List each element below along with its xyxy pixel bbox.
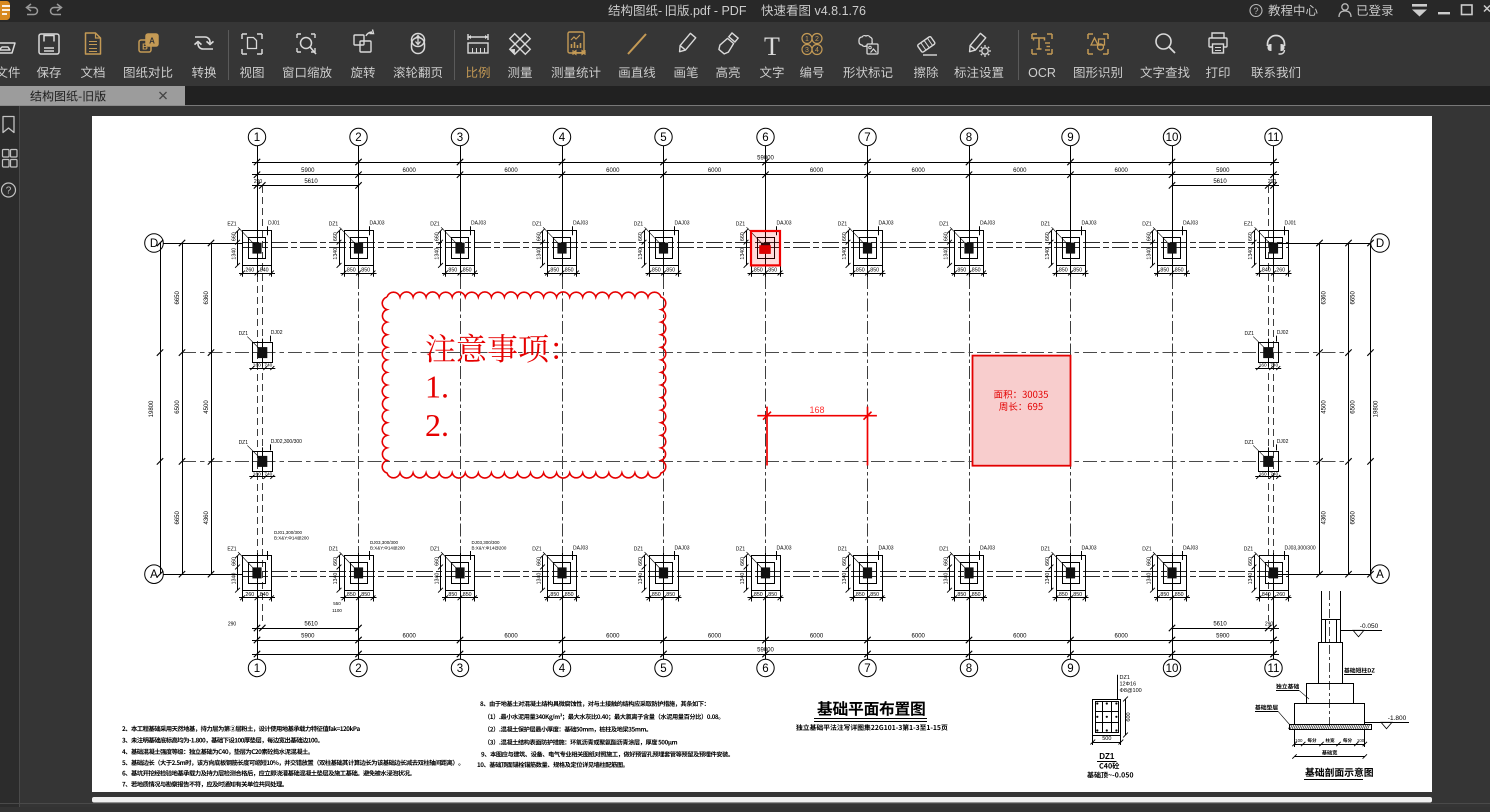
svg-text:660: 660 [638, 232, 644, 241]
svg-text:DAJ03: DAJ03 [777, 546, 792, 552]
svg-text:850: 850 [957, 592, 966, 598]
svg-text:5900: 5900 [301, 168, 315, 174]
svg-text:5610: 5610 [1213, 622, 1227, 628]
svg-text:Φ8@100: Φ8@100 [1120, 688, 1142, 694]
svg-text:660: 660 [944, 557, 950, 566]
svg-text:660: 660 [435, 557, 441, 566]
svg-text:660: 660 [537, 232, 543, 241]
svg-text:660: 660 [333, 232, 339, 241]
svg-text:A: A [150, 569, 158, 581]
svg-text:1340: 1340 [435, 573, 441, 585]
svg-text:1100: 1100 [332, 608, 342, 613]
svg-text:740: 740 [1270, 471, 1278, 477]
svg-text:840: 840 [260, 267, 269, 273]
svg-text:4: 4 [559, 132, 566, 144]
svg-text:DJ03,300/300: DJ03,300/300 [370, 540, 399, 545]
svg-text:7: 7 [864, 132, 870, 144]
svg-text:DZ1: DZ1 [1244, 440, 1254, 446]
svg-text:3: 3 [457, 663, 463, 675]
svg-text:DZ1: DZ1 [634, 547, 644, 553]
svg-text:160: 160 [1259, 363, 1267, 369]
svg-text:DJ03,300/300: DJ03,300/300 [1285, 546, 1316, 552]
svg-text:850: 850 [768, 267, 777, 273]
svg-text:850: 850 [1059, 592, 1068, 598]
svg-text:850: 850 [565, 267, 574, 273]
svg-text:5: 5 [660, 132, 666, 144]
svg-text:850: 850 [347, 592, 356, 598]
svg-text:850: 850 [463, 267, 472, 273]
svg-text:1340: 1340 [537, 573, 543, 585]
svg-text:B:X&Y:Φ14@200: B:X&Y:Φ14@200 [370, 546, 405, 551]
svg-text:840: 840 [260, 592, 269, 598]
svg-text:850: 850 [550, 592, 559, 598]
svg-text:DZ1: DZ1 [532, 222, 542, 228]
svg-text:A: A [149, 37, 155, 46]
svg-text:6650: 6650 [1351, 510, 1357, 524]
svg-text:2: 2 [815, 36, 819, 43]
svg-text:6000: 6000 [504, 168, 518, 174]
svg-text:850: 850 [347, 267, 356, 273]
svg-text:168: 168 [809, 405, 824, 415]
svg-text:850: 850 [652, 267, 661, 273]
svg-text:850: 850 [1073, 267, 1082, 273]
svg-text:6000: 6000 [810, 634, 824, 640]
svg-text:7: 7 [864, 663, 870, 675]
svg-text:6: 6 [762, 132, 768, 144]
svg-text:850: 850 [957, 267, 966, 273]
svg-text:11: 11 [1268, 132, 1280, 144]
svg-text:6000: 6000 [504, 634, 518, 640]
svg-text:1340: 1340 [944, 248, 950, 260]
svg-text:-1.800: -1.800 [1388, 715, 1407, 722]
svg-text:1: 1 [254, 663, 260, 675]
svg-text:DZ1: DZ1 [430, 547, 440, 553]
svg-text:4500: 4500 [204, 400, 210, 414]
svg-text:1340: 1340 [740, 248, 746, 260]
svg-text:DAJ03: DAJ03 [980, 546, 995, 552]
svg-text:2.: 2. [425, 407, 449, 443]
svg-text:4500: 4500 [1322, 400, 1328, 414]
svg-text:DAJ03: DAJ03 [1183, 221, 1198, 227]
svg-text:EZ1: EZ1 [1244, 222, 1253, 228]
svg-text:DZ1: DZ1 [329, 222, 339, 228]
svg-text:850: 850 [1175, 267, 1184, 273]
svg-text:10: 10 [1166, 663, 1179, 675]
svg-text:1340: 1340 [333, 248, 339, 260]
svg-text:8: 8 [966, 663, 972, 675]
svg-text:850: 850 [768, 592, 777, 598]
svg-text:3: 3 [457, 132, 463, 144]
svg-text:850: 850 [856, 592, 865, 598]
svg-text:290: 290 [228, 622, 237, 628]
svg-text:1340: 1340 [1248, 248, 1254, 260]
svg-text:6000: 6000 [1115, 634, 1129, 640]
svg-text:6650: 6650 [175, 510, 181, 524]
svg-text:660: 660 [1045, 557, 1051, 566]
svg-text:740: 740 [1270, 363, 1278, 369]
svg-text:660: 660 [1147, 557, 1153, 566]
svg-text:DZ1: DZ1 [1120, 675, 1130, 681]
svg-text:3: 3 [805, 47, 809, 54]
svg-text:DJ01,300/300: DJ01,300/300 [274, 530, 303, 535]
svg-text:6000: 6000 [1115, 168, 1129, 174]
svg-text:DZ1: DZ1 [239, 440, 249, 446]
svg-text:850: 850 [666, 267, 675, 273]
svg-text:11: 11 [1268, 663, 1280, 675]
svg-text:DJ02: DJ02 [271, 330, 283, 336]
svg-text:660: 660 [232, 232, 238, 241]
svg-text:DZ1: DZ1 [838, 222, 848, 228]
svg-text:DZ1: DZ1 [939, 547, 949, 553]
svg-text:850: 850 [565, 592, 574, 598]
svg-text:660: 660 [842, 232, 848, 241]
svg-text:DAJ03: DAJ03 [471, 221, 486, 227]
svg-text:1340: 1340 [232, 248, 238, 260]
svg-text:DZ1: DZ1 [532, 547, 542, 553]
svg-text:DZ1: DZ1 [1041, 222, 1051, 228]
svg-text:5610: 5610 [304, 179, 318, 185]
svg-text:850: 850 [754, 592, 763, 598]
svg-text:660: 660 [944, 232, 950, 241]
svg-text:6000: 6000 [1013, 634, 1027, 640]
svg-text:12Φ16: 12Φ16 [1120, 682, 1137, 688]
svg-text:660: 660 [435, 232, 441, 241]
svg-text:DJ03,300/300: DJ03,300/300 [472, 540, 501, 545]
svg-text:9: 9 [1067, 663, 1073, 675]
svg-text:DJ01: DJ01 [1285, 221, 1297, 227]
svg-text:850: 850 [1160, 592, 1169, 598]
svg-text:DZ1: DZ1 [329, 547, 339, 553]
svg-text:DAJ03: DAJ03 [879, 546, 894, 552]
svg-text:850: 850 [361, 267, 370, 273]
svg-text:5: 5 [660, 663, 666, 675]
svg-text:550: 550 [333, 601, 341, 606]
svg-text:DAJ03: DAJ03 [879, 221, 894, 227]
svg-text:850: 850 [870, 267, 879, 273]
svg-text:2: 2 [355, 663, 361, 675]
svg-text:DZ1: DZ1 [1142, 222, 1152, 228]
svg-text:1: 1 [254, 132, 260, 144]
svg-text:DZ1: DZ1 [838, 547, 848, 553]
svg-text:6000: 6000 [403, 168, 417, 174]
svg-text:DJ02: DJ02 [1277, 439, 1289, 445]
svg-text:?: ? [1253, 6, 1258, 16]
svg-text:850: 850 [972, 592, 981, 598]
svg-text:OCR: OCR [1028, 66, 1056, 80]
svg-text:850: 850 [652, 592, 661, 598]
svg-text:4360: 4360 [1322, 510, 1328, 524]
svg-text:5610: 5610 [1213, 179, 1227, 185]
svg-text:850: 850 [1073, 592, 1082, 598]
svg-text:660: 660 [740, 232, 746, 241]
svg-text:600: 600 [1126, 712, 1132, 721]
svg-text:660: 660 [537, 557, 543, 566]
svg-text:850: 850 [1059, 267, 1068, 273]
svg-text:5900: 5900 [1216, 168, 1230, 174]
svg-text:1340: 1340 [1147, 573, 1153, 585]
svg-text:160: 160 [1259, 471, 1267, 477]
svg-text:6: 6 [762, 663, 768, 675]
svg-text:260: 260 [1276, 267, 1285, 273]
svg-text:DAJ03: DAJ03 [777, 221, 792, 227]
svg-text:DZ1: DZ1 [1041, 547, 1051, 553]
svg-text:5610: 5610 [304, 622, 318, 628]
svg-text:19800: 19800 [1374, 400, 1380, 417]
svg-text:840: 840 [1262, 267, 1271, 273]
svg-text:4360: 4360 [204, 510, 210, 524]
svg-text:D: D [150, 238, 158, 250]
svg-text:660: 660 [740, 557, 746, 566]
svg-text:260: 260 [245, 592, 254, 598]
svg-text:1340: 1340 [435, 248, 441, 260]
svg-text:850: 850 [361, 592, 370, 598]
svg-text:DJ02: DJ02 [1277, 330, 1289, 336]
svg-text:260: 260 [245, 267, 254, 273]
svg-text:DZ1: DZ1 [1244, 331, 1254, 337]
svg-text:10: 10 [1166, 132, 1179, 144]
svg-text:850: 850 [1175, 592, 1184, 598]
svg-text:B:X&Y:Φ14@200: B:X&Y:Φ14@200 [472, 546, 507, 551]
svg-text:6650: 6650 [175, 290, 181, 304]
svg-text:740: 740 [264, 471, 272, 477]
svg-text:DAJ03: DAJ03 [1082, 221, 1097, 227]
svg-text:1340: 1340 [232, 573, 238, 585]
svg-text:6000: 6000 [708, 634, 722, 640]
svg-text:6000: 6000 [403, 634, 417, 640]
svg-text:850: 850 [754, 267, 763, 273]
svg-text:4: 4 [559, 663, 566, 675]
svg-text:1.: 1. [425, 369, 449, 405]
svg-text:DAJ03: DAJ03 [573, 546, 588, 552]
svg-text:6650: 6650 [1351, 290, 1357, 304]
svg-text:660: 660 [638, 557, 644, 566]
svg-text:DZ1: DZ1 [939, 222, 949, 228]
svg-text:DAJ03: DAJ03 [1183, 546, 1198, 552]
svg-text:DZ1: DZ1 [239, 331, 249, 337]
svg-text:6000: 6000 [606, 168, 620, 174]
svg-text:6000: 6000 [606, 634, 620, 640]
svg-text:6000: 6000 [912, 634, 926, 640]
svg-text:660: 660 [1147, 232, 1153, 241]
svg-text:850: 850 [666, 592, 675, 598]
svg-text:DZ1: DZ1 [736, 547, 746, 553]
svg-text:DZ1: DZ1 [1099, 752, 1115, 761]
svg-text:DZ1: DZ1 [1244, 547, 1254, 553]
svg-text:.pdf - PDF: .pdf - PDF [690, 4, 750, 18]
svg-text:DAJ03: DAJ03 [1082, 546, 1097, 552]
svg-text:6500: 6500 [1351, 400, 1357, 414]
svg-text:1340: 1340 [537, 248, 543, 260]
svg-text:DJ01: DJ01 [268, 221, 280, 227]
svg-text:1340: 1340 [842, 573, 848, 585]
svg-text:DAJ03: DAJ03 [370, 221, 385, 227]
svg-text:660: 660 [232, 557, 238, 566]
svg-text:T: T [764, 32, 780, 61]
svg-text:v4.8.1.76: v4.8.1.76 [811, 4, 866, 18]
svg-text:6360: 6360 [1322, 290, 1328, 304]
svg-text:850: 850 [463, 592, 472, 598]
svg-text:100: 100 [1357, 738, 1365, 743]
svg-text:160: 160 [253, 363, 261, 369]
svg-text:6000: 6000 [1013, 168, 1027, 174]
svg-text:1340: 1340 [333, 573, 339, 585]
svg-text:DAJ03: DAJ03 [980, 221, 995, 227]
svg-text:DZ1: DZ1 [1142, 547, 1152, 553]
svg-text:660: 660 [1045, 232, 1051, 241]
svg-text:850: 850 [1160, 267, 1169, 273]
svg-text:660: 660 [333, 557, 339, 566]
svg-text:6000: 6000 [810, 168, 824, 174]
svg-text:500: 500 [1102, 736, 1111, 742]
svg-text:19800: 19800 [149, 400, 155, 417]
svg-text:1340: 1340 [740, 573, 746, 585]
svg-text:850: 850 [448, 592, 457, 598]
svg-text:DAJ03: DAJ03 [573, 221, 588, 227]
svg-text:EZ1: EZ1 [227, 222, 236, 228]
svg-text:5900: 5900 [1216, 634, 1230, 640]
svg-text:DZ1: DZ1 [736, 222, 746, 228]
svg-text:A: A [1376, 569, 1384, 581]
svg-text:850: 850 [972, 267, 981, 273]
svg-text:840: 840 [1262, 592, 1271, 598]
svg-text:850: 850 [448, 267, 457, 273]
svg-text:260: 260 [1276, 592, 1285, 598]
svg-text:9: 9 [1067, 132, 1073, 144]
svg-text:6000: 6000 [912, 168, 926, 174]
svg-text:5900: 5900 [301, 634, 315, 640]
svg-text:4: 4 [815, 47, 819, 54]
svg-text:1340: 1340 [1147, 248, 1153, 260]
svg-text:D: D [1376, 238, 1384, 250]
svg-text:DJ02,300/300: DJ02,300/300 [271, 439, 302, 445]
svg-text:850: 850 [550, 267, 559, 273]
svg-text:100: 100 [1295, 738, 1303, 743]
svg-text:1340: 1340 [1248, 573, 1254, 585]
svg-text:?: ? [6, 186, 12, 197]
svg-text:850: 850 [870, 592, 879, 598]
svg-text:850: 850 [856, 267, 865, 273]
svg-text:1340: 1340 [944, 573, 950, 585]
svg-text:-0.050: -0.050 [1360, 623, 1379, 630]
svg-text:-: - [658, 4, 662, 18]
svg-text:6500: 6500 [175, 400, 181, 414]
svg-text:6000: 6000 [708, 168, 722, 174]
svg-text:1340: 1340 [842, 248, 848, 260]
svg-text:B:X&Y:Φ14@200: B:X&Y:Φ14@200 [274, 536, 309, 541]
svg-text:160: 160 [253, 471, 261, 477]
svg-text:1340: 1340 [638, 573, 644, 585]
svg-text:660: 660 [1248, 557, 1254, 566]
svg-text:6360: 6360 [204, 290, 210, 304]
svg-text:660: 660 [1248, 232, 1254, 241]
svg-text:DAJ03: DAJ03 [675, 221, 690, 227]
svg-text:1340: 1340 [1045, 248, 1051, 260]
svg-text:EZ1: EZ1 [227, 547, 236, 553]
svg-text:660: 660 [842, 557, 848, 566]
svg-text:1340: 1340 [638, 248, 644, 260]
svg-text:740: 740 [264, 363, 272, 369]
svg-text:1340: 1340 [1045, 573, 1051, 585]
svg-text:2: 2 [355, 132, 361, 144]
svg-text:DZ1: DZ1 [430, 222, 440, 228]
svg-text:8: 8 [966, 132, 972, 144]
svg-text:DZ1: DZ1 [634, 222, 644, 228]
svg-text:DAJ03: DAJ03 [675, 546, 690, 552]
svg-text:B: B [142, 43, 148, 52]
svg-text:1: 1 [805, 36, 809, 43]
